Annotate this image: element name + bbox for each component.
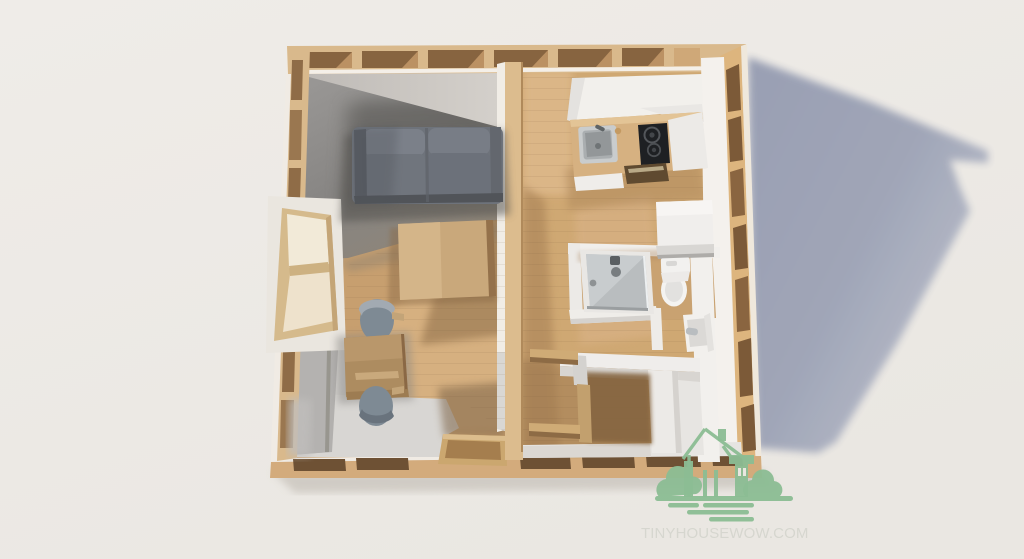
svg-text:TINYHOUSEWOW.COM: TINYHOUSEWOW.COM [641,525,808,542]
